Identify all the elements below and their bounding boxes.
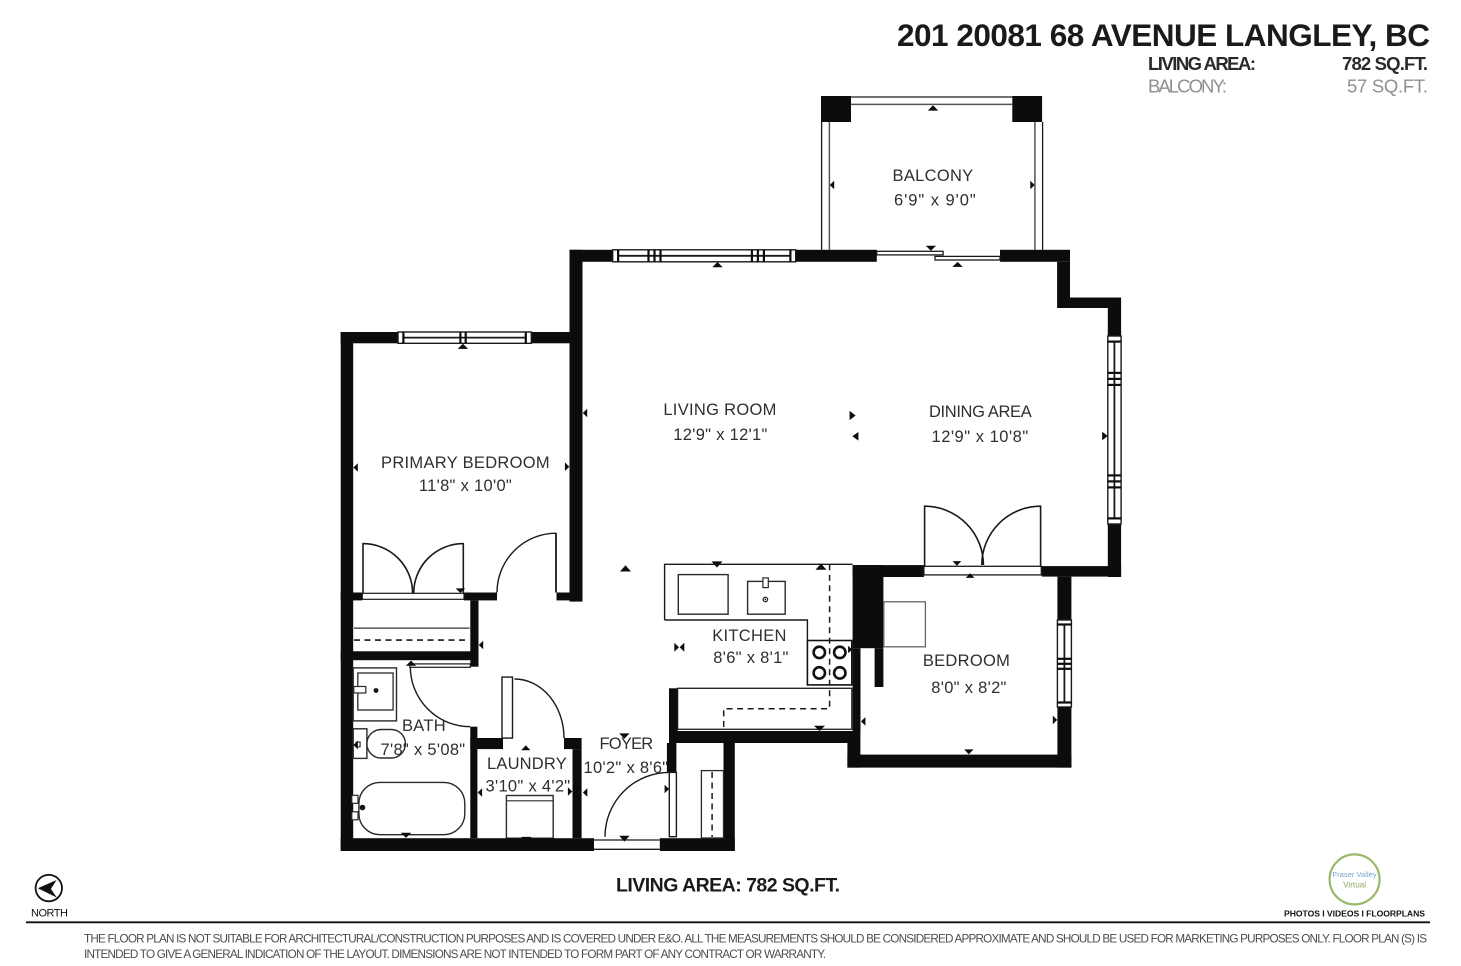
svg-text:Virtual: Virtual [1343,881,1366,890]
svg-text:LIVING ROOM: LIVING ROOM [663,401,776,419]
svg-text:DINING AREA: DINING AREA [929,403,1032,421]
svg-text:KITCHEN: KITCHEN [712,627,787,645]
svg-text:BATH: BATH [402,717,446,735]
svg-text:FOYER: FOYER [600,735,654,753]
svg-text:INTENDED TO GIVE A GENERAL IND: INTENDED TO GIVE A GENERAL INDICATION OF… [84,948,826,961]
svg-text:11'8" x 10'0": 11'8" x 10'0" [419,477,512,495]
svg-text:3'10" x 4'2": 3'10" x 4'2" [486,778,571,796]
svg-text:8'0" x 8'2": 8'0" x 8'2" [931,679,1006,697]
svg-text:NORTH: NORTH [31,908,68,920]
svg-text:12'9" x 12'1": 12'9" x 12'1" [673,426,767,444]
svg-text:BALCONY:: BALCONY: [1148,76,1227,97]
svg-text:PRIMARY BEDROOM: PRIMARY BEDROOM [381,454,550,472]
svg-text:BALCONY: BALCONY [893,167,974,185]
svg-text:Fraser Valley: Fraser Valley [1333,870,1377,879]
svg-text:7'8" x 5'08": 7'8" x 5'08" [381,741,466,759]
svg-text:57 SQ.FT.: 57 SQ.FT. [1347,76,1428,97]
svg-text:6'9" x 9'0": 6'9" x 9'0" [894,192,976,210]
svg-text:782 SQ.FT.: 782 SQ.FT. [1342,53,1428,74]
svg-text:10'2" x 8'6": 10'2" x 8'6" [584,759,669,777]
svg-text:PHOTOS I VIDEOS I FLOORPLANS: PHOTOS I VIDEOS I FLOORPLANS [1284,909,1425,919]
svg-text:201 20081 68 AVENUE LANGLEY, B: 201 20081 68 AVENUE LANGLEY, BC [897,17,1430,53]
svg-text:LIVING AREA:: LIVING AREA: [1148,53,1256,74]
svg-text:THE FLOOR PLAN IS NOT SUITABLE: THE FLOOR PLAN IS NOT SUITABLE FOR ARCHI… [84,933,1427,946]
svg-text:8'6" x 8'1": 8'6" x 8'1" [713,649,788,667]
svg-text:BEDROOM: BEDROOM [923,652,1010,670]
svg-text:12'9" x 10'8": 12'9" x 10'8" [932,428,1029,446]
svg-text:LAUNDRY: LAUNDRY [487,755,567,773]
svg-text:LIVING AREA: 782 SQ.FT.: LIVING AREA: 782 SQ.FT. [616,875,840,897]
